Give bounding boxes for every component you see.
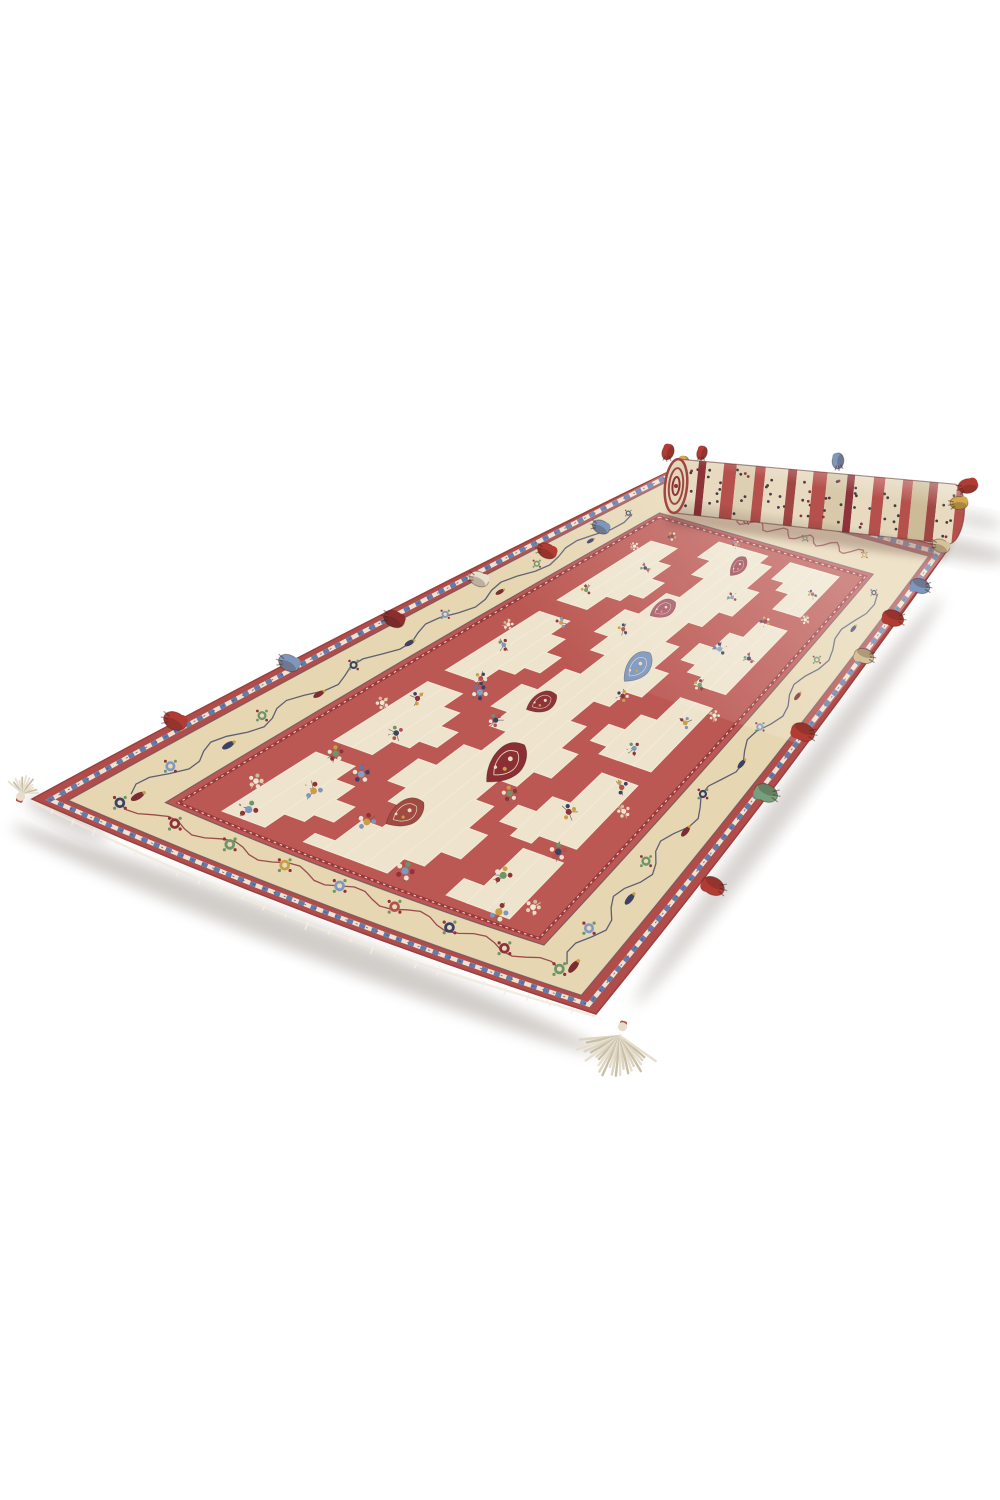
rosette-leaf xyxy=(508,952,511,955)
flower-petal xyxy=(255,774,259,778)
rosette-center xyxy=(168,764,173,769)
flower-petal xyxy=(497,917,502,922)
flower-petal xyxy=(413,692,417,696)
rosette-leaf xyxy=(582,922,585,925)
border-rosette xyxy=(333,879,347,893)
rosette-leaf xyxy=(706,797,709,800)
border-rosette xyxy=(388,900,402,914)
flower-petal xyxy=(411,698,415,702)
border-rosette xyxy=(640,855,652,867)
flower-petal xyxy=(337,756,341,760)
flower-petal xyxy=(491,714,495,718)
flower-petal xyxy=(617,809,620,812)
flower-center xyxy=(253,778,259,784)
flower-petal xyxy=(359,765,364,770)
rosette-center xyxy=(701,792,705,796)
flower-petal xyxy=(397,864,402,869)
rosette-leaf xyxy=(113,807,116,810)
flower-petal xyxy=(626,807,629,810)
flower-center xyxy=(620,694,625,699)
flower-petal xyxy=(415,702,419,706)
flower-petal xyxy=(371,819,376,824)
flower-petal xyxy=(637,748,640,751)
flower-petal xyxy=(556,843,561,848)
flower-petal xyxy=(475,679,478,682)
rosette-leaf xyxy=(343,890,346,893)
flower-petal xyxy=(249,776,253,780)
rosette-center xyxy=(502,946,507,951)
rosette-leaf xyxy=(563,962,566,965)
rosette-leaf xyxy=(256,719,259,722)
flower-petal xyxy=(504,648,507,651)
flower-petal xyxy=(389,731,393,735)
rosette-leaf xyxy=(179,827,182,830)
border-rosette xyxy=(113,796,127,810)
flower-center xyxy=(363,819,370,826)
rosette-leaf xyxy=(582,932,585,935)
rosette-leaf xyxy=(174,770,177,773)
flower-petal xyxy=(572,807,576,811)
rosette-leaf xyxy=(234,837,237,840)
flower-petal xyxy=(353,770,358,775)
rosette-leaf xyxy=(256,710,259,713)
border-rosette xyxy=(698,789,709,800)
rosette-leaf xyxy=(348,668,351,671)
flower-petal xyxy=(420,699,424,703)
flower-petal xyxy=(406,862,411,867)
flower-petal xyxy=(392,736,396,740)
flower-petal xyxy=(305,785,310,790)
rosette-leaf xyxy=(289,858,292,861)
border-rosette xyxy=(278,858,292,872)
flower-petal xyxy=(367,826,372,831)
flower-petal xyxy=(482,673,485,676)
flower-petal xyxy=(503,866,508,871)
rosette-leaf xyxy=(164,770,167,773)
flower-petal xyxy=(363,777,368,782)
rosette-leaf xyxy=(168,827,171,830)
flower-petal xyxy=(615,786,619,790)
flower-petal xyxy=(481,685,485,689)
flower-petal xyxy=(620,814,623,817)
flower-petal xyxy=(508,873,513,878)
rosette-center xyxy=(260,713,264,717)
flower-petal xyxy=(513,789,517,793)
flower-center xyxy=(493,718,498,723)
border-rosette xyxy=(582,922,595,935)
flower-center xyxy=(393,730,399,736)
flower-petal xyxy=(686,717,689,720)
rosette-leaf xyxy=(552,962,555,965)
rosette-leaf xyxy=(563,973,566,976)
flower-petal xyxy=(633,752,636,755)
flower-petal xyxy=(499,646,502,649)
flower-center xyxy=(632,746,637,751)
flower-petal xyxy=(621,805,624,808)
rosette-leaf xyxy=(113,796,116,799)
flower-petal xyxy=(505,797,509,801)
rosette-leaf xyxy=(223,848,226,851)
rosette-center xyxy=(337,883,342,888)
flower-petal xyxy=(500,903,505,908)
rosette-leaf xyxy=(398,900,401,903)
flower-petal xyxy=(495,869,500,874)
flower-petal xyxy=(512,796,516,800)
flower-petal xyxy=(628,748,631,751)
flower-center xyxy=(683,721,688,726)
flower-petal xyxy=(561,809,565,813)
flower-petal xyxy=(685,726,688,729)
flower-petal xyxy=(688,722,691,725)
flower-petal xyxy=(396,872,401,877)
rosette-leaf xyxy=(278,869,281,872)
rosette-leaf xyxy=(398,911,401,914)
border-rosette xyxy=(164,760,177,773)
rug-photo-svg xyxy=(0,0,1000,1500)
rosette-center xyxy=(117,800,122,805)
flower-petal xyxy=(562,848,567,853)
rosette-center xyxy=(282,863,287,868)
flower-petal xyxy=(503,880,508,885)
flower-petal xyxy=(314,795,319,800)
flower-petal xyxy=(622,699,625,702)
flower-petal xyxy=(507,786,511,790)
rosette-leaf xyxy=(164,760,167,763)
flower-petal xyxy=(502,791,506,795)
flower-petal xyxy=(552,855,557,860)
rosette-leaf xyxy=(265,719,268,722)
rosette-leaf xyxy=(124,796,127,799)
flower-petal xyxy=(617,697,620,700)
flower-petal xyxy=(710,717,713,720)
flower-petal xyxy=(318,788,323,793)
flower-center xyxy=(477,689,483,695)
rosette-leaf xyxy=(443,921,446,924)
rosette-leaf xyxy=(234,848,237,851)
flower-petal xyxy=(619,791,623,795)
flower-petal xyxy=(533,900,537,904)
tassel-shade xyxy=(951,502,966,509)
flower-petal xyxy=(249,801,254,806)
flower-center xyxy=(478,676,483,681)
rosette-center xyxy=(172,821,177,826)
flower-petal xyxy=(384,698,387,701)
flower-petal xyxy=(410,869,415,874)
flower-center xyxy=(358,771,365,778)
rosette-leaf xyxy=(388,900,391,903)
flower-center xyxy=(333,750,339,756)
rosette-leaf xyxy=(453,931,456,934)
flower-petal xyxy=(491,904,496,909)
flower-petal xyxy=(550,847,555,852)
flower-center xyxy=(555,849,562,856)
border-rosette xyxy=(552,962,566,976)
border-rosette xyxy=(256,710,268,722)
rosette-leaf xyxy=(168,817,171,820)
flower-petal xyxy=(241,802,246,807)
flower-petal xyxy=(393,726,397,730)
flower-petal xyxy=(630,743,633,746)
rosette-leaf xyxy=(698,797,701,800)
flower-petal xyxy=(533,911,537,915)
rosette-leaf xyxy=(333,879,336,882)
flower-petal xyxy=(571,814,575,818)
rosette-center xyxy=(352,663,356,667)
border-rosette xyxy=(443,921,457,935)
flower-petal xyxy=(564,815,568,819)
flower-petal xyxy=(484,678,487,681)
flower-petal xyxy=(624,788,628,792)
flower-petal xyxy=(618,781,622,785)
flower-petal xyxy=(339,749,343,753)
flower-petal xyxy=(474,685,478,689)
flower-petal xyxy=(680,718,683,721)
flower-petal xyxy=(376,701,379,704)
flower-petal xyxy=(379,697,382,700)
rosette-leaf xyxy=(649,864,652,867)
flower-center xyxy=(245,806,252,813)
rosette-center xyxy=(227,842,232,847)
flower-petal xyxy=(493,724,497,728)
flower-petal xyxy=(313,782,318,787)
rosette-leaf xyxy=(356,660,359,663)
rosette-leaf xyxy=(593,922,596,925)
flower-petal xyxy=(478,696,482,700)
flower-petal xyxy=(624,782,628,786)
rosette-center xyxy=(644,859,648,863)
border-rosette xyxy=(348,660,359,671)
rosette-leaf xyxy=(508,941,511,944)
flower-petal xyxy=(359,816,364,821)
rosette-center xyxy=(392,904,397,909)
flower-petal xyxy=(240,811,245,816)
flower-petal xyxy=(497,715,501,719)
flower-petal xyxy=(626,813,629,816)
flower-petal xyxy=(399,735,403,739)
rosette-leaf xyxy=(388,911,391,914)
flower-center xyxy=(401,867,408,874)
rosette-leaf xyxy=(124,807,127,810)
border-rosette xyxy=(168,817,182,831)
rosette-leaf xyxy=(453,921,456,924)
flower-petal xyxy=(365,770,370,775)
flower-petal xyxy=(253,808,258,813)
rosette-leaf xyxy=(498,952,501,955)
rosette-leaf xyxy=(278,858,281,861)
rosette-leaf xyxy=(223,837,226,840)
rosette-leaf xyxy=(265,710,268,713)
rosette-center xyxy=(557,967,562,972)
flower-petal xyxy=(495,877,500,882)
rosette-leaf xyxy=(289,869,292,872)
flower-petal xyxy=(330,757,334,761)
flower-petal xyxy=(489,719,493,723)
flower-center xyxy=(500,872,507,879)
border-rosette xyxy=(498,941,512,955)
flower-petal xyxy=(503,911,508,916)
flower-petal xyxy=(419,693,423,697)
flower-petal xyxy=(617,691,620,694)
flower-center xyxy=(495,908,502,915)
rosette-center xyxy=(447,925,452,930)
flower-petal xyxy=(355,777,360,782)
rosette-leaf xyxy=(593,932,596,935)
flower-petal xyxy=(248,814,253,819)
rosette-leaf xyxy=(698,789,701,792)
flower-petal xyxy=(306,793,311,798)
border-rosette xyxy=(223,837,237,851)
rosette-leaf xyxy=(356,668,359,671)
flower-center xyxy=(507,791,513,797)
flower-petal xyxy=(359,824,364,829)
flower-center xyxy=(380,700,385,705)
flower-petal xyxy=(626,695,629,698)
rosette-leaf xyxy=(179,817,182,820)
rosette-leaf xyxy=(343,879,346,882)
rosette-leaf xyxy=(348,660,351,663)
flower-petal xyxy=(399,728,403,732)
product-photo xyxy=(0,0,1000,1500)
flower-petal xyxy=(476,673,479,676)
flower-center xyxy=(566,809,572,815)
flower-petal xyxy=(480,682,483,685)
flower-petal xyxy=(714,718,717,721)
flower-petal xyxy=(366,813,371,818)
flower-petal xyxy=(260,779,264,783)
flower-petal xyxy=(256,784,260,788)
flower-center xyxy=(530,904,536,910)
flower-petal xyxy=(680,724,683,727)
flower-center xyxy=(310,788,317,795)
flower-petal xyxy=(472,692,476,696)
rosette-leaf xyxy=(443,931,446,934)
flower-petal xyxy=(499,721,503,725)
flower-petal xyxy=(559,855,564,860)
rosette-leaf xyxy=(552,973,555,976)
flower-petal xyxy=(404,876,409,881)
rosette-leaf xyxy=(640,855,643,858)
rosette-leaf xyxy=(649,855,652,858)
flower-petal xyxy=(379,706,382,709)
flower-petal xyxy=(537,905,541,909)
flower-petal xyxy=(333,745,337,749)
flower-petal xyxy=(566,804,570,808)
flower-petal xyxy=(385,704,388,707)
rosette-leaf xyxy=(174,760,177,763)
rosette-leaf xyxy=(333,890,336,893)
flower-center xyxy=(415,696,420,701)
flower-petal xyxy=(623,690,626,693)
rosette-leaf xyxy=(706,789,709,792)
flower-petal xyxy=(527,901,531,905)
flower-petal xyxy=(250,783,254,787)
rosette-leaf xyxy=(498,941,501,944)
flower-petal xyxy=(526,908,530,912)
flower-petal xyxy=(328,750,332,754)
rosette-center xyxy=(587,926,592,931)
flower-petal xyxy=(636,743,639,746)
flower-petal xyxy=(484,692,488,696)
flower-center xyxy=(619,785,624,790)
rosette-leaf xyxy=(640,864,643,867)
flower-petal xyxy=(490,913,495,918)
flower-center xyxy=(621,809,626,814)
